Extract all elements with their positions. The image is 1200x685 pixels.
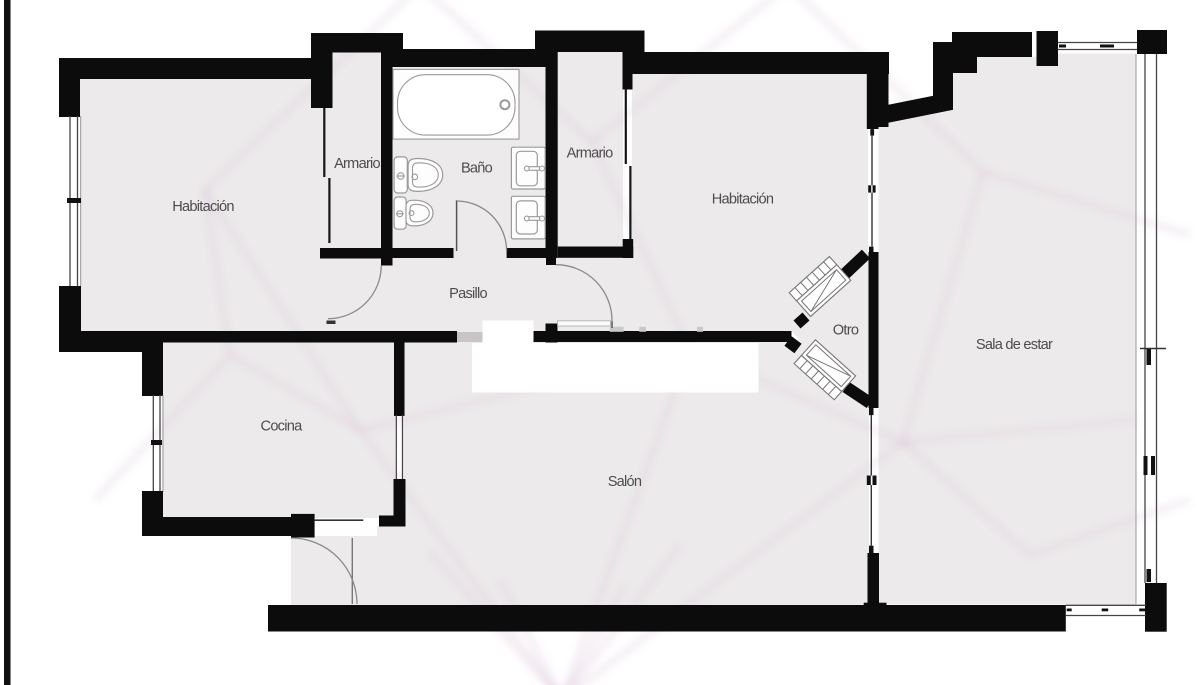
- svg-text:Salón: Salón: [608, 474, 642, 490]
- svg-text:Sala de estar: Sala de estar: [976, 337, 1053, 353]
- svg-text:Cocina: Cocina: [261, 419, 304, 435]
- svg-text:Armario: Armario: [567, 146, 613, 162]
- svg-text:Habitación: Habitación: [712, 192, 774, 208]
- svg-text:Baño: Baño: [461, 161, 493, 177]
- svg-text:Armario: Armario: [334, 156, 380, 172]
- svg-text:Habitación: Habitación: [172, 199, 234, 215]
- svg-text:Otro: Otro: [833, 323, 859, 339]
- svg-text:Pasillo: Pasillo: [449, 286, 487, 302]
